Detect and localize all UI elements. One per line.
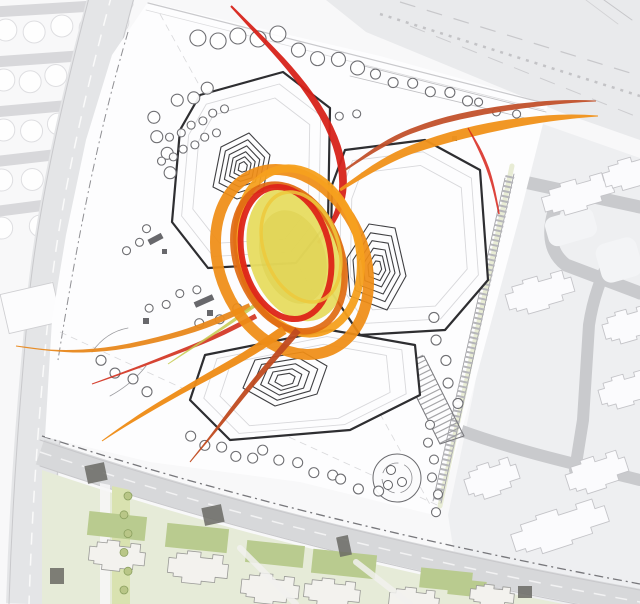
- tree: [120, 511, 128, 519]
- tree: [248, 453, 258, 463]
- tree: [270, 26, 286, 42]
- tree: [475, 98, 483, 106]
- tree: [142, 387, 152, 397]
- tree: [388, 78, 398, 88]
- tree: [331, 52, 345, 66]
- hatched-structure: [50, 568, 64, 584]
- tree: [169, 153, 177, 161]
- tree: [148, 111, 160, 123]
- tree: [231, 451, 241, 461]
- tree: [335, 112, 343, 120]
- site-furniture: [143, 318, 149, 324]
- site-furniture: [207, 310, 213, 316]
- tree: [158, 157, 166, 165]
- tree: [291, 43, 305, 57]
- tree: [384, 481, 393, 490]
- tree: [432, 508, 441, 517]
- tree: [21, 120, 43, 142]
- tree: [201, 82, 213, 94]
- tree: [162, 300, 170, 308]
- tree: [201, 133, 209, 141]
- tree: [177, 129, 185, 137]
- tree: [217, 442, 227, 452]
- tree: [374, 486, 384, 496]
- tree: [143, 225, 151, 233]
- tree: [212, 129, 220, 137]
- tree: [45, 65, 67, 87]
- tree: [441, 355, 451, 365]
- hatched-structure: [518, 586, 532, 598]
- tree: [445, 87, 455, 97]
- tree: [187, 121, 195, 129]
- tree: [19, 71, 41, 93]
- tree: [309, 468, 319, 478]
- tree: [453, 398, 463, 408]
- tree: [176, 290, 184, 298]
- tree: [124, 567, 132, 575]
- tree: [274, 455, 284, 465]
- tree: [120, 586, 128, 594]
- tree: [311, 52, 325, 66]
- tree: [433, 490, 442, 499]
- tree: [124, 492, 132, 500]
- masterplan-figure: [0, 0, 640, 604]
- tree: [463, 96, 473, 106]
- tree: [191, 141, 199, 149]
- tree: [190, 30, 206, 46]
- tree: [443, 378, 453, 388]
- tree: [151, 131, 163, 143]
- tree: [210, 33, 226, 49]
- tree: [429, 312, 439, 322]
- tree: [96, 355, 106, 365]
- tree: [425, 420, 434, 429]
- tree: [124, 530, 132, 538]
- tree: [370, 69, 380, 79]
- tree: [51, 15, 73, 37]
- tree: [353, 484, 363, 494]
- tree: [353, 110, 361, 118]
- tree: [351, 61, 365, 75]
- tree: [21, 168, 43, 190]
- tree: [186, 431, 196, 441]
- tree: [166, 133, 174, 141]
- tree: [23, 21, 45, 43]
- tree: [209, 109, 217, 117]
- tree: [164, 167, 176, 179]
- tree: [293, 458, 303, 468]
- tree: [145, 304, 153, 312]
- tree: [128, 374, 138, 384]
- tree: [428, 473, 437, 482]
- tree: [336, 474, 346, 484]
- tree: [199, 117, 207, 125]
- tree: [193, 286, 201, 294]
- tree: [425, 87, 435, 97]
- tree: [171, 94, 183, 106]
- tree: [230, 28, 246, 44]
- tree: [424, 438, 433, 447]
- tree: [120, 548, 128, 556]
- tree: [123, 247, 131, 255]
- tree: [0, 19, 17, 41]
- tree: [408, 78, 418, 88]
- tree: [179, 145, 187, 153]
- tree: [220, 105, 228, 113]
- tree: [188, 92, 200, 104]
- tree: [513, 110, 521, 118]
- tree: [431, 335, 441, 345]
- site-furniture: [162, 249, 167, 254]
- tree: [387, 466, 396, 475]
- tree: [429, 455, 438, 464]
- site-plan-svg: [0, 0, 640, 604]
- tree: [258, 445, 268, 455]
- tree: [135, 238, 143, 246]
- tree: [398, 478, 407, 487]
